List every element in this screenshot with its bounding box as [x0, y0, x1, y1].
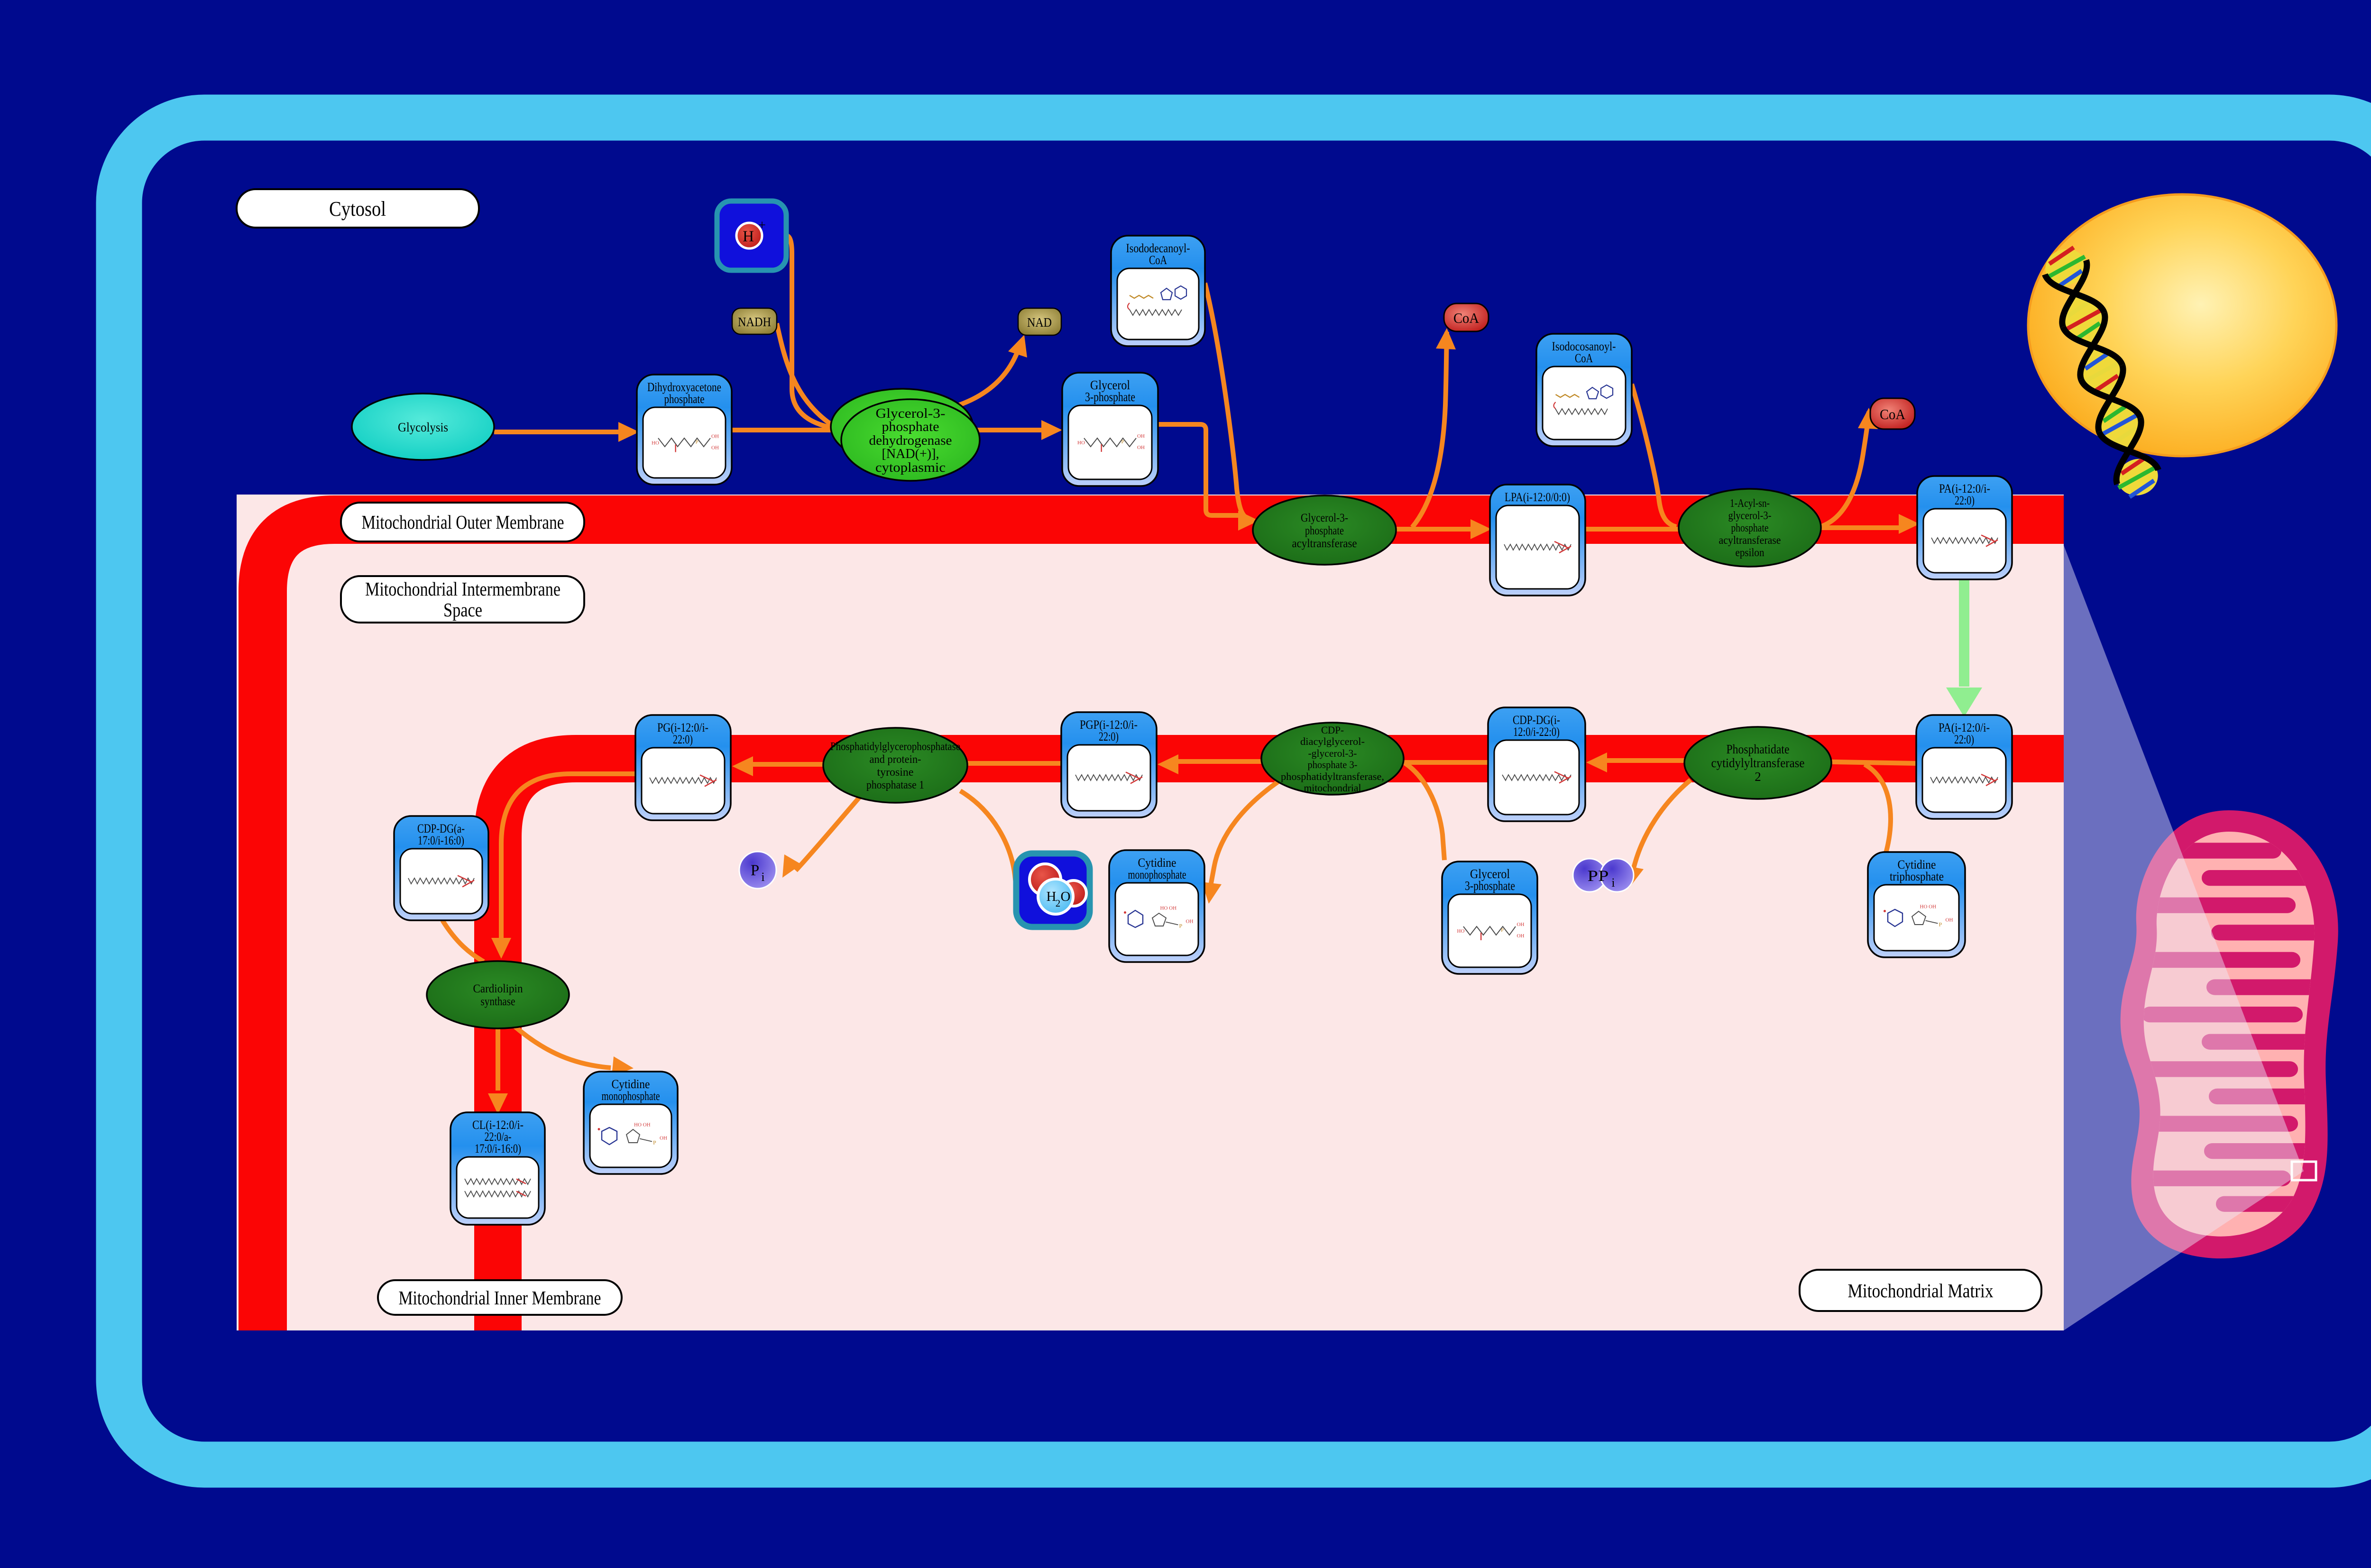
svg-text:and protein-: and protein- — [870, 753, 921, 766]
svg-text:12:0/i-22:0): 12:0/i-22:0) — [1513, 725, 1560, 739]
svg-text:22:0): 22:0) — [1954, 733, 1974, 746]
svg-text:HO: HO — [1457, 928, 1465, 934]
svg-text:Cytosol: Cytosol — [329, 197, 386, 220]
svg-text:P: P — [653, 1139, 656, 1146]
svg-text:i: i — [761, 870, 764, 884]
svg-text:HO: HO — [652, 440, 659, 446]
svg-text:Glycerol-3-: Glycerol-3- — [876, 406, 946, 421]
svg-text:acyltransferase: acyltransferase — [1292, 537, 1357, 550]
svg-text:Phosphatidate: Phosphatidate — [1727, 742, 1790, 756]
svg-text:glycerol-3-: glycerol-3- — [1728, 510, 1772, 522]
svg-text:P: P — [751, 862, 759, 879]
svg-text:Glycerol-3-: Glycerol-3- — [1301, 512, 1348, 524]
svg-text:phosphatase 1: phosphatase 1 — [866, 779, 924, 791]
svg-text:Space: Space — [443, 599, 482, 621]
svg-text:phosphatidyltransferase,: phosphatidyltransferase, — [1281, 770, 1384, 782]
svg-text:2: 2 — [1755, 770, 1761, 784]
svg-text:O: O — [1061, 889, 1071, 904]
svg-text:HO OH: HO OH — [1160, 906, 1177, 911]
svg-text:phosphate: phosphate — [1731, 522, 1769, 534]
svg-text:Glycolysis: Glycolysis — [398, 420, 448, 434]
svg-text:Mitochondrial Outer Membrane: Mitochondrial Outer Membrane — [362, 511, 564, 533]
svg-text:P: P — [1939, 921, 1942, 928]
svg-text:Cardiolipin: Cardiolipin — [473, 982, 523, 995]
svg-text:synthase: synthase — [481, 995, 515, 1008]
svg-text:epsilon: epsilon — [1736, 547, 1764, 559]
svg-text:triphosphate: triphosphate — [1890, 870, 1944, 883]
svg-text:22:0): 22:0) — [673, 733, 693, 746]
svg-text:17:0/i-16:0): 17:0/i-16:0) — [418, 834, 464, 847]
svg-text:phosphate: phosphate — [882, 420, 939, 434]
svg-text:3-phosphate: 3-phosphate — [1085, 390, 1135, 404]
svg-text:22:0): 22:0) — [1955, 494, 1975, 507]
svg-text:cytidylyltransferase: cytidylyltransferase — [1711, 756, 1805, 770]
svg-text:P: P — [1501, 927, 1504, 933]
svg-text:H: H — [1047, 889, 1057, 904]
svg-text:OH: OH — [1186, 919, 1194, 925]
svg-text:CoA: CoA — [1575, 351, 1593, 365]
svg-text:HO OH: HO OH — [634, 1122, 651, 1128]
svg-text:H: H — [743, 228, 754, 245]
svg-text:phosphate: phosphate — [1305, 524, 1344, 537]
svg-text:OH: OH — [1517, 922, 1525, 927]
svg-text:2: 2 — [1056, 898, 1061, 909]
svg-text:1-Acyl-sn-: 1-Acyl-sn- — [1730, 497, 1770, 510]
svg-text:OH: OH — [711, 434, 719, 440]
svg-text:OH: OH — [1137, 433, 1145, 439]
svg-text:Phosphatidylglycerophosphatase: Phosphatidylglycerophosphatase — [830, 741, 960, 753]
svg-text:[NAD(+)],: [NAD(+)], — [882, 447, 939, 461]
svg-text:monophosphate: monophosphate — [1128, 868, 1186, 881]
svg-text:acyltransferase: acyltransferase — [1719, 534, 1781, 547]
svg-text:cytoplasmic: cytoplasmic — [875, 460, 946, 475]
svg-text:CoA: CoA — [1149, 253, 1167, 267]
svg-text:OH: OH — [1137, 445, 1145, 450]
svg-text:-glycerol-3-: -glycerol-3- — [1308, 747, 1357, 759]
svg-text:LPA(i-12:0/0:0): LPA(i-12:0/0:0) — [1505, 490, 1570, 504]
svg-text:P: P — [696, 440, 698, 445]
svg-text:HO: HO — [1077, 440, 1085, 446]
svg-text:OH: OH — [711, 445, 719, 451]
svg-text:Mitochondrial Inner Membrane: Mitochondrial Inner Membrane — [399, 1287, 601, 1309]
svg-text:P: P — [1121, 439, 1124, 445]
svg-text:+: + — [758, 218, 766, 233]
svg-text:CoA: CoA — [1453, 310, 1480, 326]
svg-text:22:0): 22:0) — [1099, 730, 1119, 743]
svg-text:phosphate: phosphate — [664, 392, 705, 406]
svg-text:phosphate 3-: phosphate 3- — [1308, 759, 1358, 770]
svg-text:Mitochondrial Intermembrane: Mitochondrial Intermembrane — [365, 578, 561, 600]
svg-text:Mitochondrial Matrix: Mitochondrial Matrix — [1848, 1280, 1994, 1302]
svg-text:17:0/i-16:0): 17:0/i-16:0) — [475, 1142, 521, 1155]
svg-text:P: P — [1179, 923, 1183, 929]
svg-text:3-phosphate: 3-phosphate — [1465, 879, 1515, 893]
svg-text:CoA: CoA — [1880, 406, 1906, 422]
svg-text:OH: OH — [1517, 933, 1525, 939]
svg-text:PP: PP — [1588, 868, 1609, 885]
svg-text:OH: OH — [1946, 917, 1953, 923]
svg-text:CDP-: CDP- — [1321, 724, 1344, 736]
svg-text:i: i — [1611, 876, 1615, 889]
svg-text:NADH: NADH — [738, 315, 771, 329]
svg-text:dehydrogenase: dehydrogenase — [869, 433, 952, 448]
svg-text:HO OH: HO OH — [1920, 904, 1937, 910]
svg-text:OH: OH — [660, 1136, 667, 1141]
svg-text:monophosphate: monophosphate — [602, 1089, 660, 1103]
svg-text:mitochondrial: mitochondrial — [1304, 782, 1361, 794]
svg-text:diacylglycerol-: diacylglycerol- — [1300, 735, 1365, 747]
svg-text:NAD: NAD — [1027, 315, 1052, 330]
svg-text:tyrosine: tyrosine — [877, 766, 914, 779]
